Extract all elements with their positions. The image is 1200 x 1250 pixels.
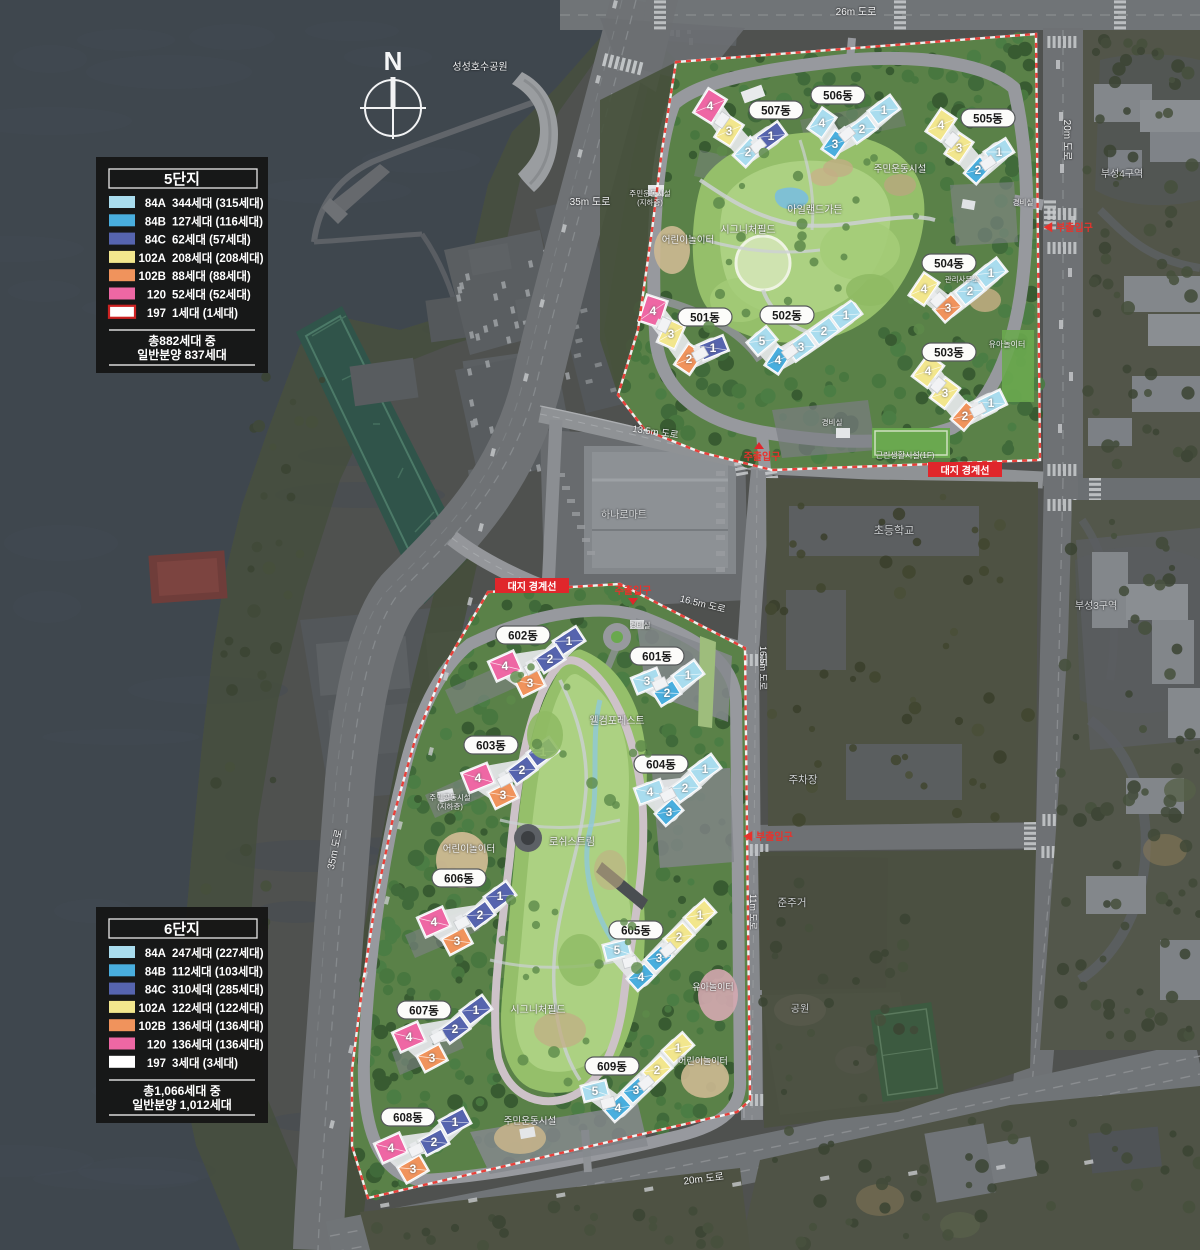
svg-text:유아놀이터: 유아놀이터: [989, 339, 1026, 349]
svg-text:주민공동시설: 주민공동시설: [429, 792, 470, 802]
svg-text:4: 4: [431, 915, 438, 929]
svg-text:2: 2: [664, 686, 671, 700]
svg-text:2: 2: [686, 352, 693, 366]
svg-text:1: 1: [843, 308, 850, 322]
svg-text:3: 3: [945, 301, 952, 315]
svg-text:4: 4: [938, 118, 945, 132]
svg-text:603동: 603동: [476, 740, 506, 753]
svg-text:84A: 84A: [145, 198, 166, 210]
svg-text:4: 4: [388, 1141, 395, 1155]
svg-text:1: 1: [988, 396, 995, 410]
svg-text:84C: 84C: [145, 235, 166, 247]
svg-text:어린이놀이터: 어린이놀이터: [678, 1056, 728, 1066]
svg-text:3: 3: [956, 141, 963, 155]
svg-text:604동: 604동: [646, 759, 676, 772]
svg-text:344세대 (315세대): 344세대 (315세대): [172, 196, 264, 210]
svg-text:주민운동시설: 주민운동시설: [629, 188, 670, 198]
svg-text:507동: 507동: [761, 105, 791, 118]
svg-text:16.5m 도로: 16.5m 도로: [758, 646, 768, 690]
svg-text:88세대 (88세대): 88세대 (88세대): [172, 269, 251, 283]
svg-text:유아놀이터: 유아놀이터: [692, 982, 733, 992]
svg-text:4: 4: [647, 785, 654, 799]
svg-text:607동: 607동: [409, 1005, 439, 1018]
svg-text:N: N: [384, 46, 403, 76]
svg-text:310세대 (285세대): 310세대 (285세대): [172, 983, 264, 997]
svg-text:4: 4: [775, 353, 782, 367]
svg-text:1: 1: [675, 1041, 682, 1055]
svg-text:606동: 606동: [444, 873, 474, 886]
svg-text:102A: 102A: [139, 1003, 167, 1015]
svg-text:4: 4: [502, 659, 509, 673]
svg-text:주차장: 주차장: [789, 774, 818, 786]
svg-text:1: 1: [996, 145, 1003, 159]
svg-text:608동: 608동: [393, 1112, 423, 1125]
svg-text:1: 1: [497, 889, 504, 903]
svg-text:84B: 84B: [145, 966, 166, 978]
svg-text:2: 2: [682, 781, 689, 795]
svg-text:성성호수공원: 성성호수공원: [452, 61, 507, 73]
svg-text:4: 4: [925, 364, 932, 378]
svg-text:84B: 84B: [145, 216, 166, 228]
svg-text:5: 5: [759, 334, 766, 348]
svg-text:시그니처필드: 시그니처필드: [510, 1004, 565, 1016]
svg-text:◀ 부출입구: ◀ 부출입구: [1043, 221, 1093, 234]
svg-text:3: 3: [668, 327, 675, 341]
svg-text:3: 3: [726, 124, 733, 138]
svg-text:3: 3: [429, 1051, 436, 1065]
svg-text:602동: 602동: [508, 630, 538, 643]
svg-text:84A: 84A: [145, 948, 166, 960]
svg-text:부성4구역: 부성4구역: [1101, 168, 1143, 180]
svg-text:4: 4: [406, 1030, 413, 1044]
svg-text:주출입구: 주출입구: [615, 584, 652, 597]
svg-text:505동: 505동: [973, 113, 1003, 126]
svg-text:197: 197: [147, 308, 166, 320]
svg-text:2: 2: [654, 1063, 661, 1077]
svg-text:3: 3: [666, 805, 673, 819]
svg-text:26m 도로: 26m 도로: [836, 7, 877, 18]
svg-text:1: 1: [697, 908, 704, 922]
svg-text:일반분양 837세대: 일반분양 837세대: [137, 347, 227, 362]
svg-text:총882세대 중: 총882세대 중: [148, 333, 216, 348]
svg-text:601동: 601동: [642, 651, 672, 664]
svg-text:◀ 부출입구: ◀ 부출입구: [743, 830, 793, 843]
svg-text:1: 1: [566, 634, 573, 648]
svg-text:4: 4: [921, 282, 928, 296]
svg-text:2: 2: [821, 324, 828, 338]
svg-text:2: 2: [431, 1135, 438, 1149]
svg-text:84C: 84C: [145, 985, 166, 997]
svg-text:관리사무소: 관리사무소: [945, 274, 980, 284]
svg-text:초등학교: 초등학교: [874, 524, 914, 537]
svg-text:1: 1: [881, 103, 888, 117]
svg-text:웰컴포레스트: 웰컴포레스트: [589, 715, 644, 727]
svg-text:5: 5: [614, 943, 621, 957]
svg-text:경비실: 경비실: [630, 620, 651, 630]
svg-text:3: 3: [454, 934, 461, 948]
svg-text:하나로마트: 하나로마트: [601, 508, 647, 521]
svg-text:2: 2: [745, 145, 752, 159]
svg-text:1: 1: [710, 341, 717, 355]
svg-text:준주거: 준주거: [778, 897, 807, 909]
svg-text:5단지: 5단지: [164, 171, 200, 188]
svg-text:2: 2: [477, 908, 484, 922]
svg-text:4: 4: [475, 771, 482, 785]
svg-text:공원: 공원: [791, 1003, 809, 1015]
svg-text:1: 1: [702, 762, 709, 776]
svg-text:136세대 (136세대): 136세대 (136세대): [172, 1038, 264, 1052]
svg-text:아일랜드가든: 아일랜드가든: [787, 204, 842, 216]
svg-text:1: 1: [452, 1115, 459, 1129]
svg-text:근린생활시설(1F): 근린생활시설(1F): [876, 450, 935, 460]
svg-text:1: 1: [473, 1003, 480, 1017]
svg-text:어린이놀이터: 어린이놀이터: [662, 235, 714, 246]
svg-text:시그니처필드: 시그니처필드: [720, 224, 775, 236]
svg-text:3: 3: [644, 674, 651, 688]
svg-text:609동: 609동: [597, 1061, 627, 1074]
svg-text:로쉬스트림: 로쉬스트림: [549, 836, 595, 848]
svg-text:2: 2: [547, 652, 554, 666]
svg-text:4: 4: [615, 1101, 622, 1115]
svg-text:127세대 (116세대): 127세대 (116세대): [172, 214, 263, 228]
svg-text:35m 도로: 35m 도로: [570, 197, 611, 208]
svg-text:62세대 (57세대): 62세대 (57세대): [172, 233, 251, 247]
svg-text:(지하층): (지하층): [437, 801, 463, 811]
svg-text:2: 2: [967, 284, 974, 298]
svg-text:2: 2: [676, 930, 683, 944]
svg-text:136세대 (136세대): 136세대 (136세대): [172, 1019, 264, 1033]
svg-text:2: 2: [452, 1022, 459, 1036]
svg-text:120: 120: [147, 1040, 166, 1052]
svg-text:4: 4: [819, 116, 826, 130]
svg-text:1: 1: [988, 266, 995, 280]
svg-text:3: 3: [656, 951, 663, 965]
svg-text:3: 3: [942, 386, 949, 400]
svg-text:대지 경계선: 대지 경계선: [941, 464, 990, 477]
svg-text:208세대 (208세대): 208세대 (208세대): [172, 251, 264, 265]
svg-text:3: 3: [527, 676, 534, 690]
svg-text:4: 4: [707, 99, 714, 113]
svg-text:102B: 102B: [139, 1021, 167, 1033]
svg-text:일반분양 1,012세대: 일반분양 1,012세대: [132, 1097, 232, 1112]
svg-text:6단지: 6단지: [164, 921, 200, 938]
svg-text:대지 경계선: 대지 경계선: [508, 580, 557, 593]
svg-text:122세대 (122세대): 122세대 (122세대): [172, 1001, 264, 1015]
svg-text:총1,066세대 중: 총1,066세대 중: [143, 1083, 221, 1098]
svg-text:(지하층): (지하층): [637, 197, 663, 207]
svg-text:102A: 102A: [139, 253, 167, 265]
svg-text:2: 2: [962, 409, 969, 423]
svg-text:경비실: 경비실: [822, 417, 843, 427]
svg-text:502동: 502동: [772, 310, 802, 323]
svg-text:3: 3: [798, 340, 805, 354]
svg-text:3: 3: [410, 1162, 417, 1176]
svg-text:52세대 (52세대): 52세대 (52세대): [172, 288, 251, 302]
svg-text:5: 5: [592, 1084, 599, 1098]
svg-text:주출입구: 주출입구: [744, 450, 781, 463]
svg-text:주민운동시설: 주민운동시설: [874, 164, 926, 175]
svg-text:120: 120: [147, 290, 166, 302]
svg-text:506동: 506동: [823, 90, 853, 103]
svg-text:4: 4: [650, 304, 657, 318]
svg-text:2: 2: [519, 763, 526, 777]
svg-text:102B: 102B: [139, 271, 167, 283]
svg-text:11m 도로: 11m 도로: [748, 894, 758, 930]
svg-text:어린이놀이터: 어린이놀이터: [443, 844, 495, 855]
svg-text:경비실: 경비실: [1013, 197, 1034, 207]
svg-text:3: 3: [500, 788, 507, 802]
svg-text:197: 197: [147, 1058, 166, 1070]
svg-text:3: 3: [633, 1083, 640, 1097]
svg-text:247세대 (227세대): 247세대 (227세대): [172, 946, 264, 960]
svg-text:1세대 (1세대): 1세대 (1세대): [172, 306, 238, 320]
svg-text:1: 1: [685, 668, 692, 682]
svg-text:503동: 503동: [934, 347, 964, 360]
svg-text:1: 1: [768, 129, 775, 143]
svg-text:부성3구역: 부성3구역: [1075, 600, 1117, 612]
svg-text:504동: 504동: [934, 258, 964, 271]
svg-text:2: 2: [975, 163, 982, 177]
svg-text:주민운동시설: 주민운동시설: [504, 1116, 556, 1127]
svg-text:2: 2: [859, 122, 866, 136]
svg-text:3세대 (3세대): 3세대 (3세대): [172, 1056, 238, 1070]
svg-text:3: 3: [832, 137, 839, 151]
svg-text:20m 도로: 20m 도로: [1061, 120, 1072, 161]
svg-text:112세대 (103세대): 112세대 (103세대): [172, 964, 263, 978]
